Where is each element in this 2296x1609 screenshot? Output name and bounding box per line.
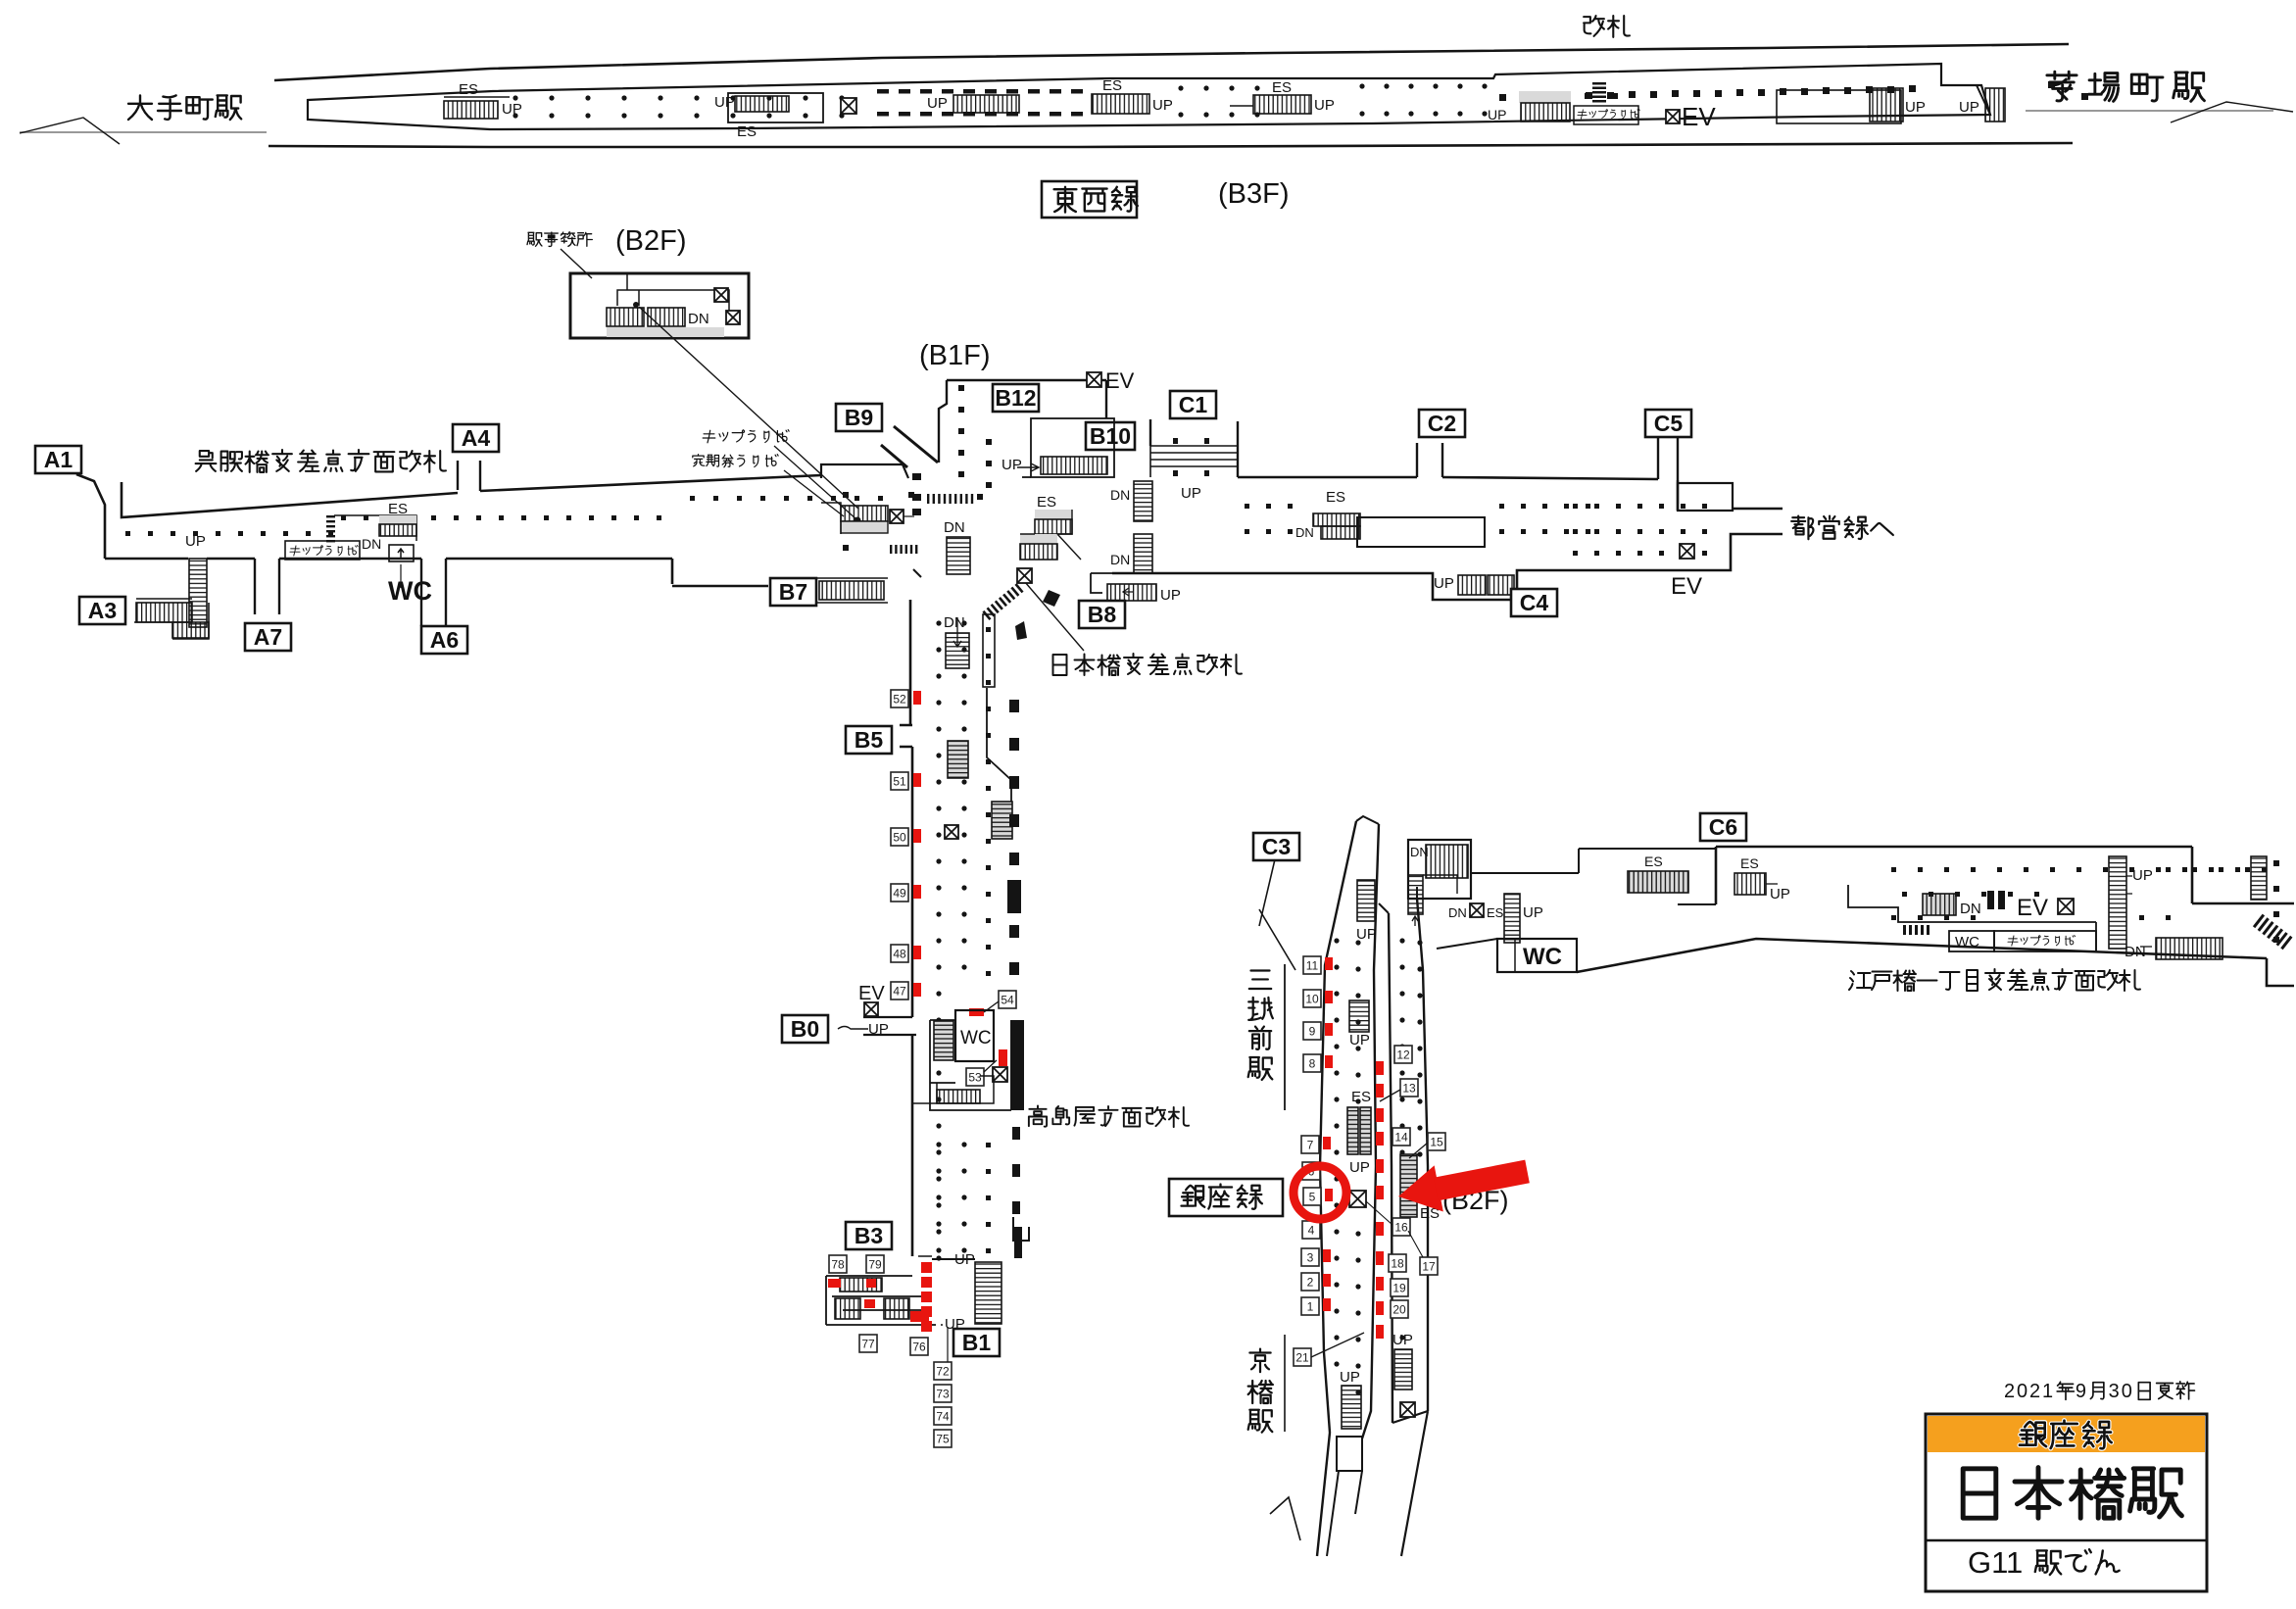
svg-text:B7: B7 xyxy=(779,579,807,605)
svg-text:(B3F): (B3F) xyxy=(1218,178,1290,210)
svg-text:B8: B8 xyxy=(1088,602,1117,627)
svg-text:16: 16 xyxy=(1394,1221,1408,1235)
svg-text:ES: ES xyxy=(1102,77,1122,94)
svg-text:ES: ES xyxy=(388,501,408,517)
svg-text:UP: UP xyxy=(2132,867,2153,884)
svg-text:UP: UP xyxy=(927,95,948,112)
svg-text:ES: ES xyxy=(737,123,757,140)
svg-text:DN: DN xyxy=(688,311,709,327)
svg-text:A3: A3 xyxy=(88,598,117,623)
svg-text:EV: EV xyxy=(1105,368,1135,393)
svg-text:EV: EV xyxy=(1682,102,1716,131)
svg-text:21: 21 xyxy=(1295,1351,1309,1365)
svg-text:WC: WC xyxy=(1955,934,1979,951)
svg-text:13: 13 xyxy=(1402,1082,1416,1096)
svg-text:UP: UP xyxy=(502,101,522,118)
svg-text:UP: UP xyxy=(1314,97,1335,114)
svg-text:UP: UP xyxy=(1488,107,1506,122)
svg-text:B3: B3 xyxy=(855,1223,883,1248)
svg-text:DN: DN xyxy=(1295,525,1314,540)
svg-text:DN: DN xyxy=(1110,552,1130,567)
svg-text:20: 20 xyxy=(1392,1303,1406,1317)
svg-text:18: 18 xyxy=(1391,1257,1404,1271)
svg-text:B10: B10 xyxy=(1090,423,1131,449)
svg-text:10: 10 xyxy=(1305,993,1319,1006)
svg-text:48: 48 xyxy=(893,948,906,961)
svg-text:EV: EV xyxy=(2017,895,2048,921)
svg-text:EV: EV xyxy=(858,983,885,1004)
svg-text:11: 11 xyxy=(1306,959,1319,973)
svg-text:ES: ES xyxy=(1487,905,1504,920)
svg-text:B5: B5 xyxy=(855,727,884,753)
svg-text:A7: A7 xyxy=(254,624,282,650)
svg-text:ES: ES xyxy=(459,81,478,98)
svg-text:7: 7 xyxy=(1307,1139,1314,1152)
svg-text:9: 9 xyxy=(1309,1025,1316,1039)
svg-text:47: 47 xyxy=(893,985,906,999)
svg-text:3: 3 xyxy=(1307,1251,1314,1265)
svg-text:ES: ES xyxy=(1644,853,1663,869)
svg-text:C1: C1 xyxy=(1179,392,1208,417)
svg-text:2: 2 xyxy=(1307,1276,1314,1290)
svg-text:DN: DN xyxy=(1448,905,1467,920)
svg-text:UP: UP xyxy=(1340,1369,1360,1386)
svg-text:14: 14 xyxy=(1394,1131,1408,1145)
svg-text:12: 12 xyxy=(1396,1048,1410,1062)
svg-text:53: 53 xyxy=(968,1071,982,1085)
svg-text:UP: UP xyxy=(1349,1159,1370,1176)
svg-text:UP: UP xyxy=(1392,1332,1413,1348)
svg-text:54: 54 xyxy=(1001,994,1014,1007)
svg-text:UP: UP xyxy=(868,1021,889,1038)
svg-text:9: 9 xyxy=(2076,1381,2086,1402)
svg-text:UP: UP xyxy=(1356,926,1377,943)
svg-text:C6: C6 xyxy=(1709,814,1737,840)
svg-text:UP: UP xyxy=(1959,99,1979,116)
svg-text:1: 1 xyxy=(2042,1381,2053,1402)
svg-text:B9: B9 xyxy=(845,405,873,430)
svg-text:0: 0 xyxy=(2122,1381,2132,1402)
svg-text:DN: DN xyxy=(944,614,965,631)
svg-text:19: 19 xyxy=(1392,1282,1406,1295)
svg-text:1: 1 xyxy=(1307,1300,1314,1314)
svg-text:(B1F): (B1F) xyxy=(919,340,991,371)
svg-text:G11: G11 xyxy=(1968,1545,2023,1580)
svg-text:UP: UP xyxy=(1523,904,1543,921)
svg-text:73: 73 xyxy=(936,1388,950,1401)
svg-text:WC: WC xyxy=(388,576,432,606)
svg-text:51: 51 xyxy=(893,775,906,789)
svg-text:76: 76 xyxy=(912,1341,926,1354)
svg-text:3: 3 xyxy=(2109,1381,2120,1402)
svg-text:74: 74 xyxy=(936,1410,950,1424)
svg-text:C4: C4 xyxy=(1520,590,1549,615)
svg-text:2: 2 xyxy=(2004,1381,2015,1402)
svg-text:72: 72 xyxy=(936,1365,950,1379)
svg-text:8: 8 xyxy=(1309,1057,1316,1071)
svg-text:UP: UP xyxy=(1770,886,1790,902)
svg-text:77: 77 xyxy=(861,1338,875,1351)
svg-text:0: 0 xyxy=(2017,1381,2027,1402)
svg-text:B12: B12 xyxy=(995,385,1036,411)
svg-text:UP: UP xyxy=(714,94,735,111)
svg-text:DN: DN xyxy=(944,519,965,536)
svg-text:DN: DN xyxy=(1960,901,1981,917)
svg-text:C5: C5 xyxy=(1654,411,1684,436)
svg-text:UP: UP xyxy=(1181,485,1201,502)
svg-text:A4: A4 xyxy=(462,425,491,451)
svg-text:79: 79 xyxy=(868,1258,882,1272)
svg-text:ES: ES xyxy=(1351,1089,1371,1105)
svg-text:DN: DN xyxy=(1410,845,1429,859)
svg-text:UP: UP xyxy=(1152,97,1173,114)
svg-text:2: 2 xyxy=(2029,1381,2040,1402)
svg-text:UP: UP xyxy=(1905,99,1926,116)
svg-text:50: 50 xyxy=(893,831,906,845)
svg-text:ES: ES xyxy=(1740,855,1759,871)
svg-text:5: 5 xyxy=(1309,1191,1316,1204)
svg-text:49: 49 xyxy=(893,887,906,901)
svg-text:DN: DN xyxy=(1110,487,1130,503)
svg-text:UP: UP xyxy=(1001,457,1022,473)
svg-text:ES: ES xyxy=(1037,494,1056,511)
svg-text:4: 4 xyxy=(1308,1224,1315,1238)
svg-text:UP: UP xyxy=(1349,1032,1370,1048)
svg-text:WC: WC xyxy=(960,1028,992,1048)
svg-text:WC: WC xyxy=(1523,944,1562,970)
svg-text:C2: C2 xyxy=(1428,411,1456,436)
svg-text:B0: B0 xyxy=(791,1016,819,1042)
svg-text:ES: ES xyxy=(1272,79,1292,96)
svg-text:52: 52 xyxy=(893,693,906,707)
svg-text:B1: B1 xyxy=(962,1330,992,1355)
svg-text:UP: UP xyxy=(1434,575,1454,592)
svg-text:C3: C3 xyxy=(1262,834,1291,859)
svg-text:17: 17 xyxy=(1422,1260,1436,1274)
svg-text:A6: A6 xyxy=(430,627,459,653)
svg-text:A1: A1 xyxy=(44,447,73,472)
svg-text:78: 78 xyxy=(831,1258,845,1272)
svg-text:75: 75 xyxy=(936,1433,950,1446)
svg-text:(B2F): (B2F) xyxy=(615,225,687,257)
svg-text:EV: EV xyxy=(1671,573,1702,600)
svg-text:15: 15 xyxy=(1430,1136,1443,1149)
svg-text:ES: ES xyxy=(1326,489,1345,506)
svg-text:UP: UP xyxy=(1160,587,1181,604)
svg-text:UP: UP xyxy=(185,533,206,550)
svg-text:DN: DN xyxy=(362,536,381,552)
